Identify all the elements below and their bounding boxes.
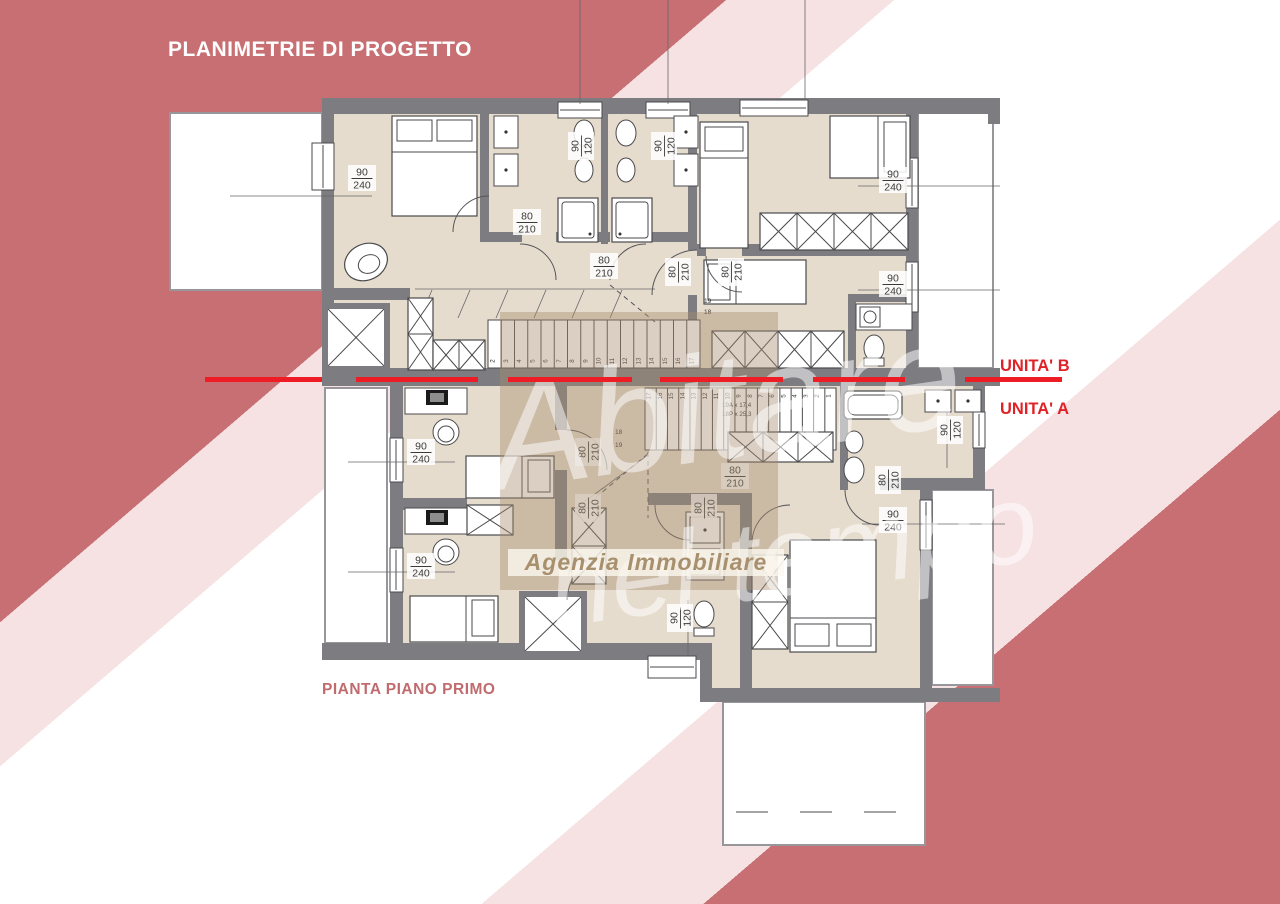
svg-text:90: 90	[653, 140, 665, 152]
bathroom-sink	[494, 154, 518, 186]
wardrobe	[760, 213, 908, 250]
svg-text:240: 240	[353, 180, 371, 192]
window	[312, 143, 334, 190]
chair	[433, 419, 459, 445]
single-bed	[410, 596, 498, 642]
terrace-unit-a-left	[325, 388, 387, 643]
shower	[558, 198, 598, 242]
window	[390, 548, 403, 592]
dimension-label: 80210	[665, 258, 692, 286]
bidet	[575, 158, 593, 182]
shower	[612, 198, 652, 242]
dimension-label: 80210	[590, 253, 618, 280]
svg-text:90: 90	[415, 555, 427, 567]
svg-text:120: 120	[583, 137, 595, 155]
dimension-label: 80210	[513, 209, 541, 236]
svg-text:210: 210	[518, 224, 536, 236]
toilet	[616, 120, 636, 146]
svg-text:80: 80	[667, 266, 679, 278]
svg-text:240: 240	[412, 454, 430, 466]
dimension-label: 90240	[879, 167, 907, 194]
svg-text:90: 90	[570, 140, 582, 152]
unit-a-label: UNITA' A	[1000, 400, 1069, 418]
svg-text:210: 210	[680, 263, 692, 281]
floor-plan-canvas: 2345678910111213141516171716151413121110…	[0, 0, 1280, 904]
svg-text:80: 80	[720, 266, 732, 278]
wardrobe	[408, 298, 433, 370]
bathroom-sink	[494, 116, 518, 148]
svg-text:90: 90	[887, 169, 899, 181]
terrace-unit-b-left	[170, 113, 322, 290]
agency-banner-text: Agenzia Immobiliare	[524, 549, 768, 575]
svg-text:210: 210	[733, 263, 745, 281]
chair	[433, 539, 459, 565]
window	[648, 656, 696, 678]
dimension-label: 90120	[568, 132, 595, 160]
svg-text:240: 240	[884, 182, 902, 194]
elevator-shaft	[325, 306, 387, 369]
window	[973, 412, 985, 448]
dimension-label: 90240	[407, 553, 435, 580]
page: { "page_title": "PLANIMETRIE DI PROGETTO…	[0, 0, 1280, 904]
svg-text:90: 90	[415, 441, 427, 453]
computer-monitor-icon	[426, 510, 448, 525]
patio-below	[723, 702, 925, 845]
stair-landing-number: 19	[704, 298, 712, 305]
svg-text:80: 80	[598, 255, 610, 267]
dimension-label: 90240	[348, 165, 376, 192]
single-bed	[700, 122, 748, 248]
window	[558, 102, 602, 118]
double-bed	[392, 116, 477, 216]
window	[390, 438, 403, 482]
svg-text:240: 240	[412, 568, 430, 580]
svg-text:90: 90	[356, 167, 368, 179]
dimension-label: 90240	[879, 271, 907, 298]
bidet	[617, 158, 635, 182]
bathroom-sink	[674, 116, 698, 148]
dimension-label: 80210	[718, 258, 745, 286]
svg-text:120: 120	[666, 137, 678, 155]
unit-b-label: UNITA' B	[1000, 357, 1070, 375]
plan-caption: PIANTA PIANO PRIMO	[322, 681, 495, 698]
svg-text:80: 80	[521, 211, 533, 223]
dimension-label: 90240	[407, 439, 435, 466]
window	[740, 100, 808, 116]
computer-monitor-icon	[426, 390, 448, 405]
bathroom-sink	[674, 154, 698, 186]
dimension-label: 90120	[651, 132, 678, 160]
svg-text:210: 210	[595, 268, 613, 280]
svg-text:90: 90	[887, 273, 899, 285]
page-title: PLANIMETRIE DI PROGETTO	[168, 38, 472, 61]
